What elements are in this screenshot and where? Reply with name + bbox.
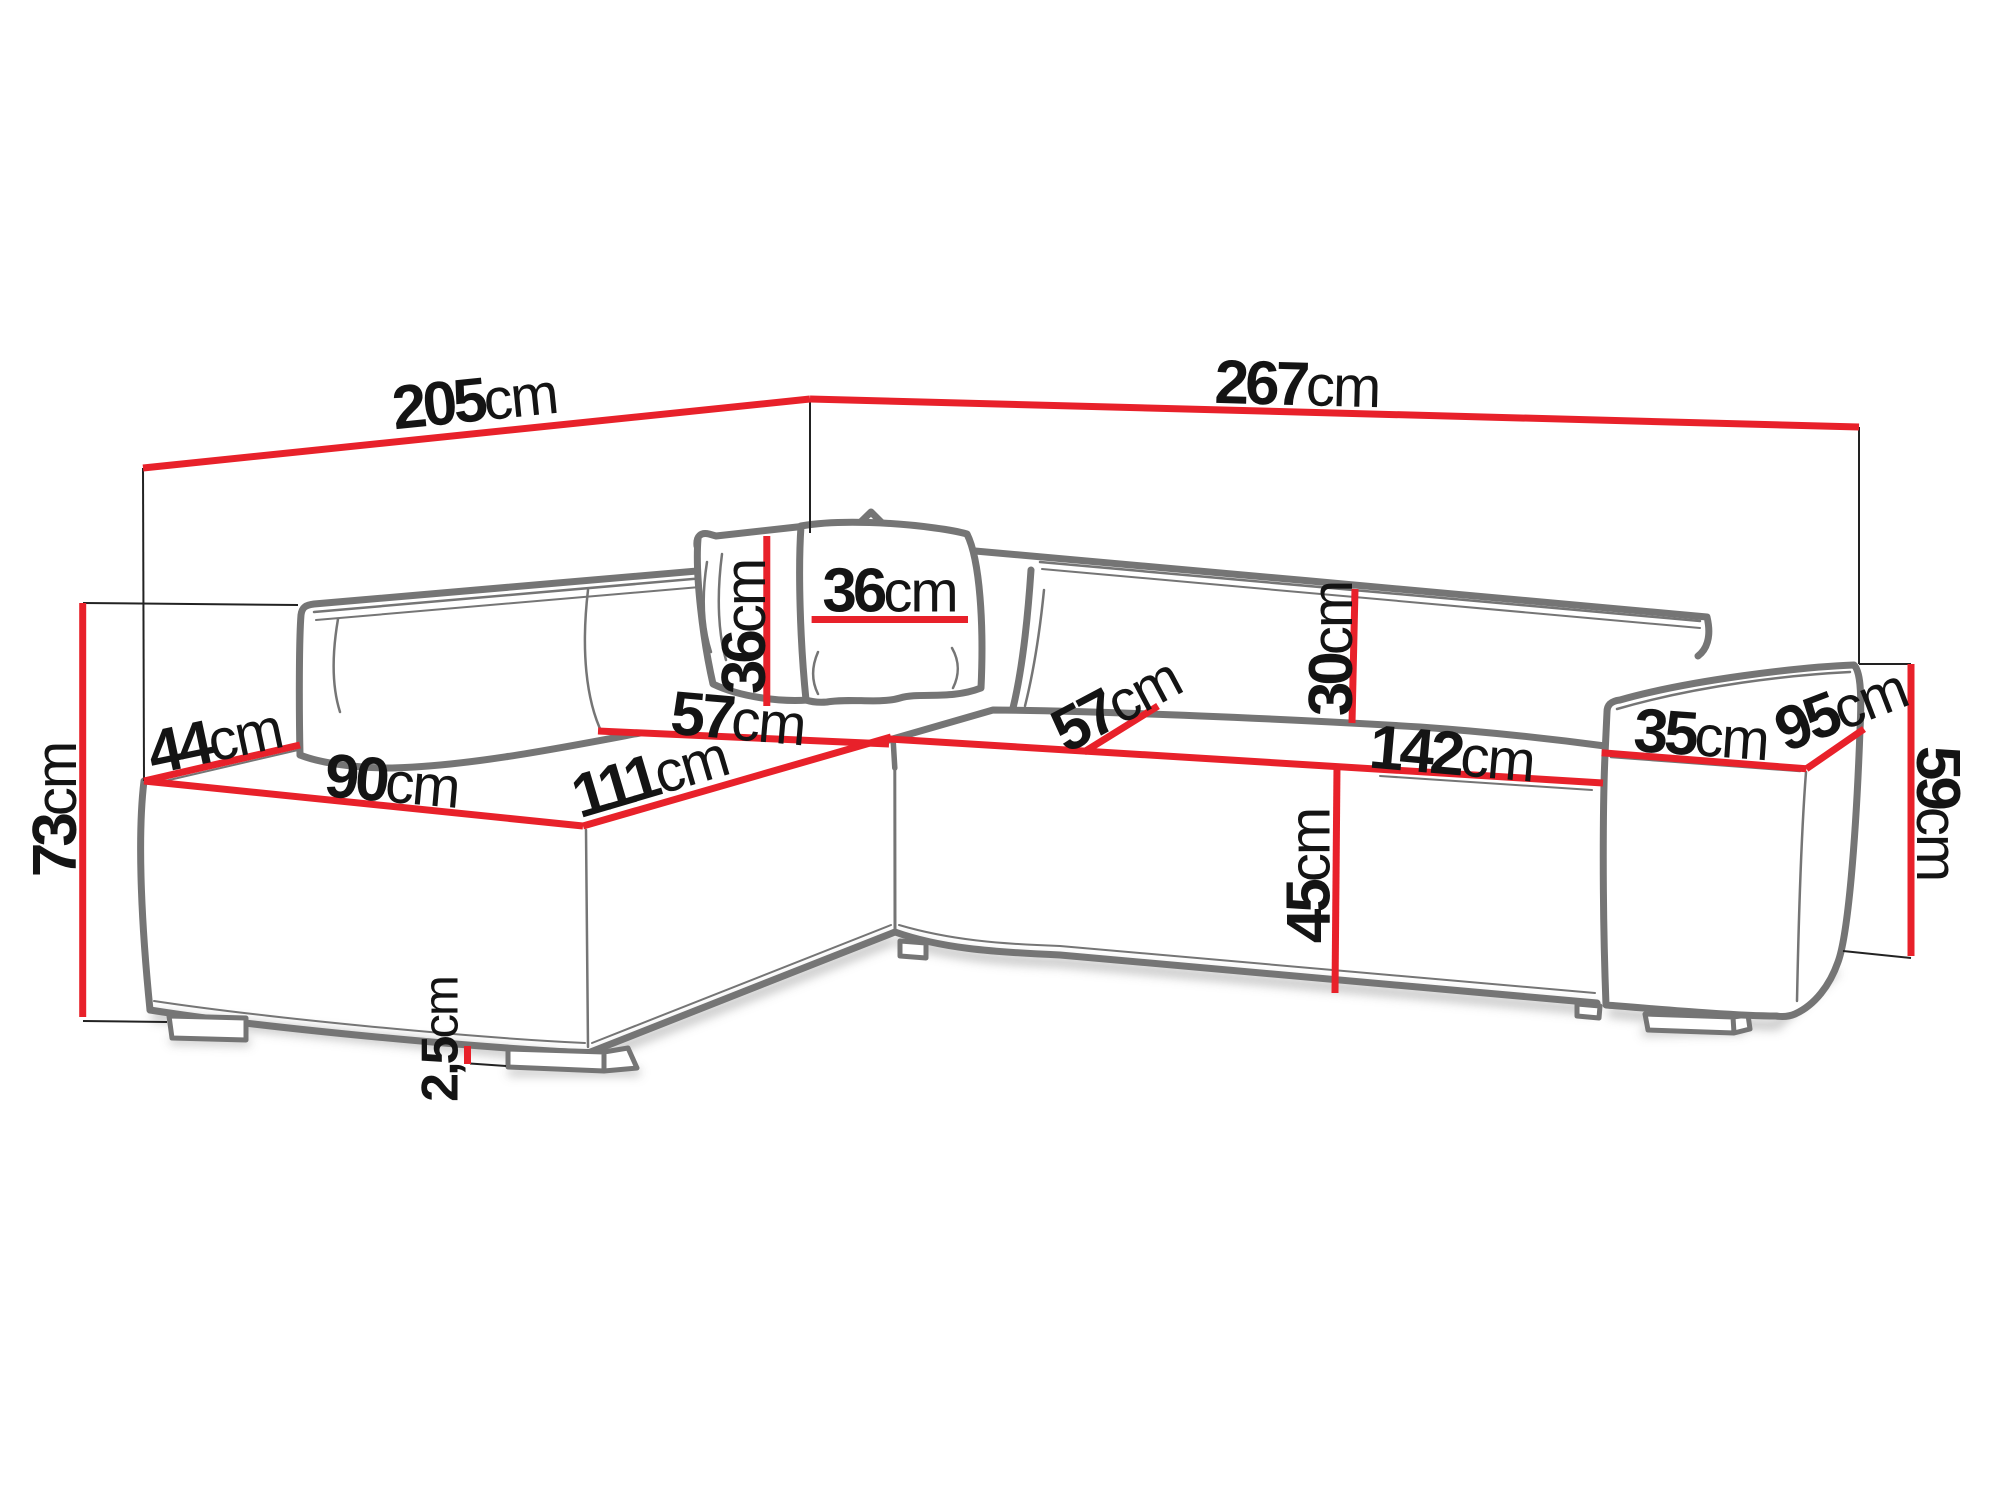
- svg-text:90cm: 90cm: [322, 741, 462, 821]
- svg-text:35cm: 35cm: [1632, 696, 1771, 774]
- svg-text:30cm: 30cm: [1297, 582, 1366, 716]
- svg-text:36cm: 36cm: [822, 557, 956, 626]
- svg-text:36cm: 36cm: [710, 560, 779, 694]
- svg-text:59cm: 59cm: [1903, 746, 1972, 880]
- svg-text:267cm: 267cm: [1214, 348, 1381, 421]
- svg-text:73cm: 73cm: [21, 743, 90, 877]
- svg-text:2,5cm: 2,5cm: [412, 977, 470, 1102]
- svg-text:45cm: 45cm: [1275, 809, 1344, 943]
